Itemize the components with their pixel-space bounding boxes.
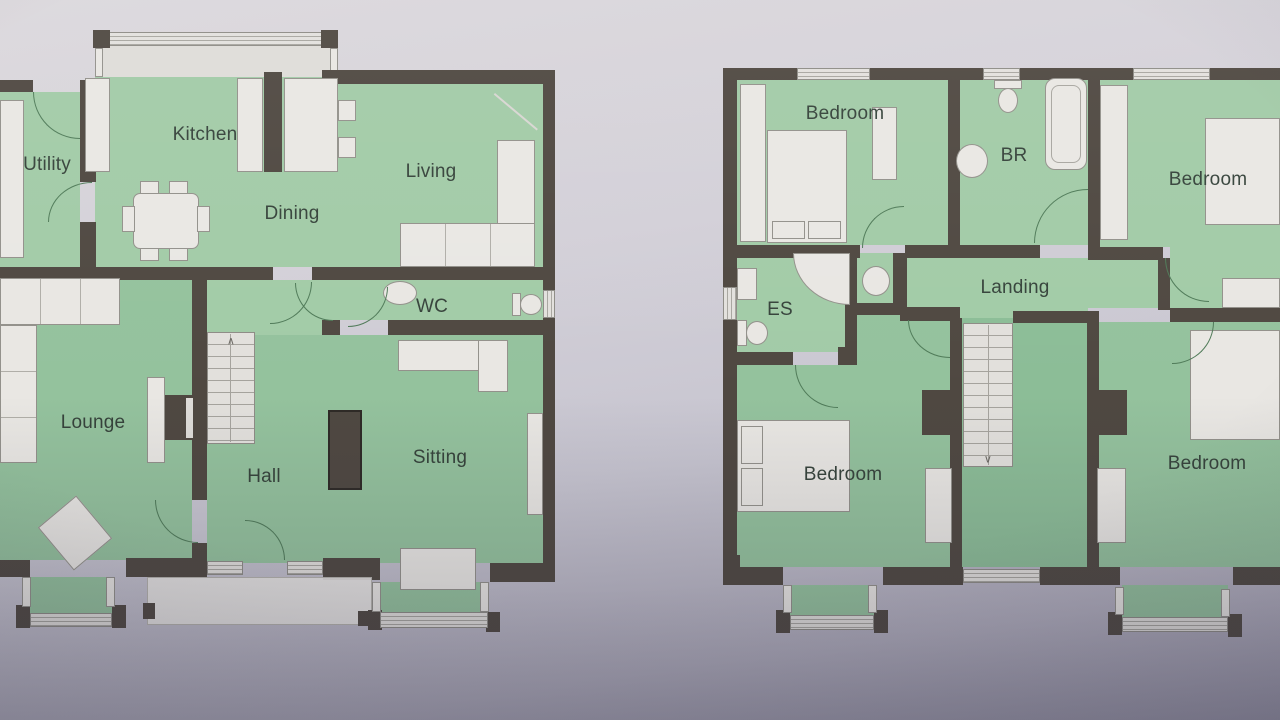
sitting-bay-post-right	[486, 612, 500, 632]
lounge-bay-post-right	[112, 605, 126, 628]
sitting-radiator	[527, 413, 543, 515]
ensuite-south-wall	[723, 352, 793, 365]
dining-table	[133, 193, 199, 249]
front-window-right	[287, 561, 323, 575]
bedroom-br-chimney-breast	[1097, 390, 1127, 435]
room-label-bedroom-tl: Bedroom	[806, 103, 885, 125]
ff-top-wall-2	[870, 68, 983, 80]
living-top-wall	[322, 70, 555, 84]
bedroom-tl-pillow	[772, 221, 805, 239]
right-wall-lower	[543, 318, 555, 580]
bedroom-br-bay-window	[1122, 617, 1228, 632]
kitchen-appliance-1	[338, 100, 356, 121]
sitting-bay-side-right	[480, 582, 489, 612]
room-label-sitting: Sitting	[413, 447, 467, 469]
utility-top-wall-left	[0, 80, 33, 92]
room-label-kitchen: Kitchen	[173, 124, 238, 146]
sitting-loveseat	[400, 548, 476, 590]
br-bay-side-right	[1221, 589, 1230, 617]
sitting-top-wall-left	[322, 320, 340, 335]
room-label-wc: WC	[416, 296, 448, 318]
bedroom-tl-pillow	[808, 221, 841, 239]
sitting-door-arc	[348, 287, 388, 327]
sitting-top-wall-right	[388, 320, 555, 335]
sitting-bay-window	[380, 612, 488, 628]
ff-bottom-wall-3	[1040, 567, 1120, 585]
wc-toilet	[520, 294, 542, 315]
room-label-bedroom-bl: Bedroom	[804, 464, 883, 486]
bedroom-br-north-wall	[1170, 308, 1280, 322]
kitchen-bay-floor	[95, 45, 338, 77]
living-south-wall	[312, 267, 555, 280]
bedroom-tl-window	[797, 68, 870, 80]
br-bay-side-left	[1115, 587, 1124, 615]
kitchen-wall-stub	[264, 72, 282, 172]
wc-sink	[383, 281, 417, 305]
dining-chair	[169, 181, 188, 194]
ensuite-south-stub	[838, 347, 857, 365]
lounge-fireplace-niche	[147, 377, 165, 463]
ff-top-wall-4	[1210, 68, 1280, 80]
bedroom-tl-south-wall-right	[905, 245, 948, 258]
dining-chair	[197, 206, 210, 232]
sitting-sofa-arm	[478, 340, 508, 392]
bedroom-bl-bay-floor	[790, 585, 874, 617]
kitchen-appliance-2	[338, 137, 356, 158]
bathroom-toilet	[998, 88, 1018, 113]
room-label-bathroom: BR	[1001, 145, 1028, 167]
ensuite-window	[723, 287, 737, 320]
landing-south-wall-right	[1013, 311, 1090, 323]
kitchen-counter-right	[237, 78, 263, 172]
room-label-landing: Landing	[980, 277, 1049, 299]
bedroom-tr-wardrobe	[1100, 85, 1128, 240]
lounge-bay-window	[30, 613, 112, 627]
lounge-bay-floor	[28, 577, 114, 615]
dining-chair	[169, 248, 188, 261]
kitchen-counter-left	[85, 78, 110, 172]
living-sofa-horizontal	[400, 223, 535, 267]
lounge-bay-post-left	[16, 605, 30, 628]
bedroom-br-wardrobe	[1097, 468, 1126, 543]
stairwell-window	[963, 569, 1040, 583]
dining-chair	[140, 181, 159, 194]
ensuite-sink	[737, 268, 757, 300]
kitchen-bay-side-window-left	[95, 48, 103, 77]
bedroom-tr-south-wall	[1088, 247, 1163, 260]
first-floor-staircase-rail	[988, 325, 989, 465]
bl-bay-side-right	[868, 585, 877, 613]
bedroom-br-bay-floor	[1122, 585, 1228, 617]
ground-staircase-rail	[230, 334, 231, 442]
hall-chimney-breast	[328, 410, 362, 490]
room-label-lounge: Lounge	[61, 412, 126, 434]
room-label-ensuite: ES	[767, 299, 793, 321]
kitchen-units	[284, 78, 338, 172]
ground-staircase	[207, 332, 255, 444]
kitchen-bay-post-left	[93, 30, 110, 48]
bedroom-bl-chimney-breast	[922, 390, 952, 435]
ensuite-toilet	[746, 321, 768, 345]
bedroom-tr-dresser	[1222, 278, 1280, 308]
water-tank	[862, 266, 890, 296]
ff-bottom-wall-4	[1233, 567, 1280, 585]
bl-bay-post-right	[874, 610, 888, 633]
bl-bay-side-left	[783, 585, 792, 613]
stairs-up-arrow: ∧	[227, 335, 235, 348]
kitchen-bay-window	[95, 32, 338, 46]
room-label-living: Living	[406, 161, 457, 183]
utility-kitchen-wall-lower	[80, 222, 96, 270]
room-label-bedroom-br: Bedroom	[1168, 453, 1247, 475]
bathroom-bathtub-inner	[1051, 85, 1081, 163]
bedroom-bl-pillow	[741, 426, 763, 464]
living-sofa-vertical	[497, 140, 535, 225]
stairs-down-arrow: ∨	[984, 453, 992, 466]
lounge-fireplace-slot	[186, 398, 193, 438]
bedroom-bl-pillow	[741, 468, 763, 506]
br-bay-post-right	[1228, 614, 1242, 637]
kitchen-bay-post-right	[321, 30, 338, 48]
front-wall-left	[126, 558, 207, 577]
right-wall-upper	[543, 70, 555, 290]
room-label-bedroom-tr: Bedroom	[1169, 169, 1248, 191]
ff-bottom-wall-2	[883, 567, 963, 585]
lounge-sofa-left	[0, 325, 37, 463]
porch-post-left	[143, 603, 155, 619]
porch-canopy	[147, 577, 372, 625]
bedroom-bl-bay-window	[790, 615, 874, 630]
lounge-bay-side-left	[22, 577, 31, 607]
floor-plan-photo: ∧ Utility Kitchen Dining Living WC Loung…	[0, 0, 1280, 720]
bathroom-south-wall	[960, 245, 1040, 258]
front-window-left	[207, 561, 243, 575]
dining-chair	[140, 248, 159, 261]
bedroom-tl-wardrobe	[740, 84, 766, 242]
stairs-lounge-wall	[192, 280, 207, 500]
room-label-dining: Dining	[264, 203, 319, 225]
sitting-bay-side-left	[372, 582, 381, 612]
ff-left-wall-upper	[723, 68, 737, 287]
lounge-bay-side-right	[106, 577, 115, 607]
room-label-utility: Utility	[23, 154, 71, 176]
bl-bay-post-left	[776, 610, 790, 633]
br-bay-post-left	[1108, 612, 1122, 635]
utility-counter	[0, 100, 24, 258]
room-label-hall: Hall	[247, 466, 281, 488]
ff-bottom-corner	[723, 555, 740, 585]
dining-chair	[122, 206, 135, 232]
front-wall-far-left	[0, 560, 30, 577]
wc-window	[543, 290, 555, 318]
bedroom-tr-window	[1133, 68, 1210, 80]
lounge-sofa-top	[0, 278, 120, 325]
bedroom-bl-wardrobe	[925, 468, 952, 543]
bathroom-window	[983, 68, 1020, 80]
sitting-bottom-wall	[490, 563, 555, 582]
ff-bottom-wall-1	[740, 567, 783, 585]
bathroom-sink	[956, 144, 988, 178]
bathroom-bedroomtr-wall	[1088, 80, 1100, 260]
